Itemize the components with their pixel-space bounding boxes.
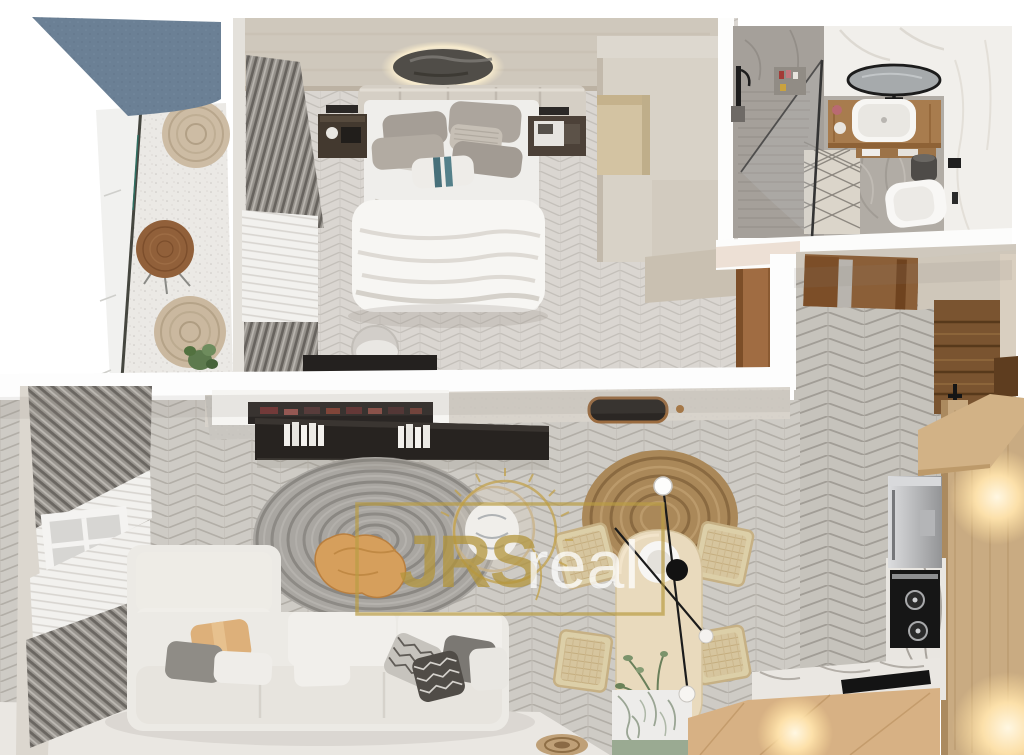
- svg-text:real: real: [526, 527, 639, 603]
- svg-text:JRS: JRS: [399, 520, 537, 603]
